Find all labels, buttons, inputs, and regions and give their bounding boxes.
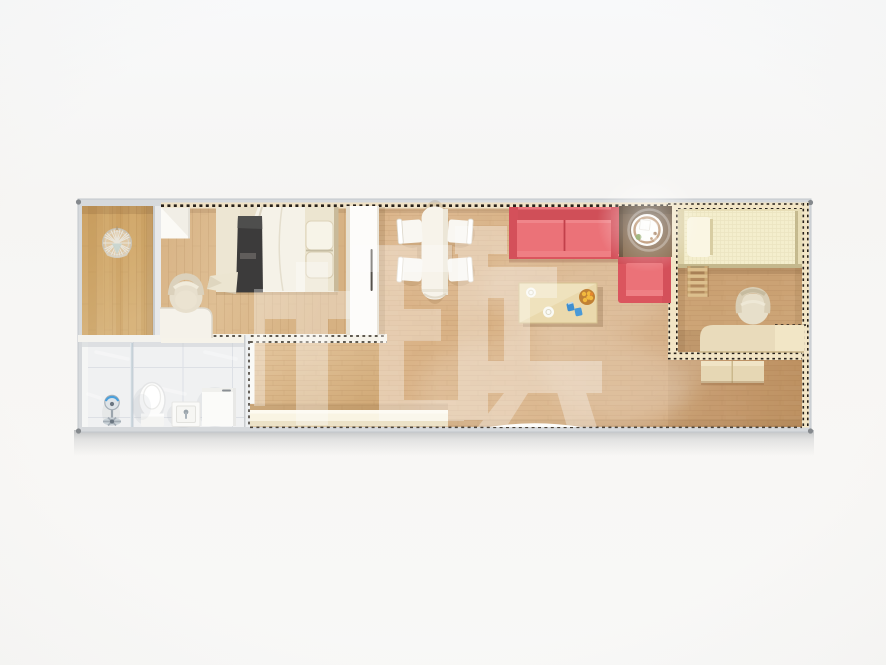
svg-text:R: R <box>638 215 660 248</box>
